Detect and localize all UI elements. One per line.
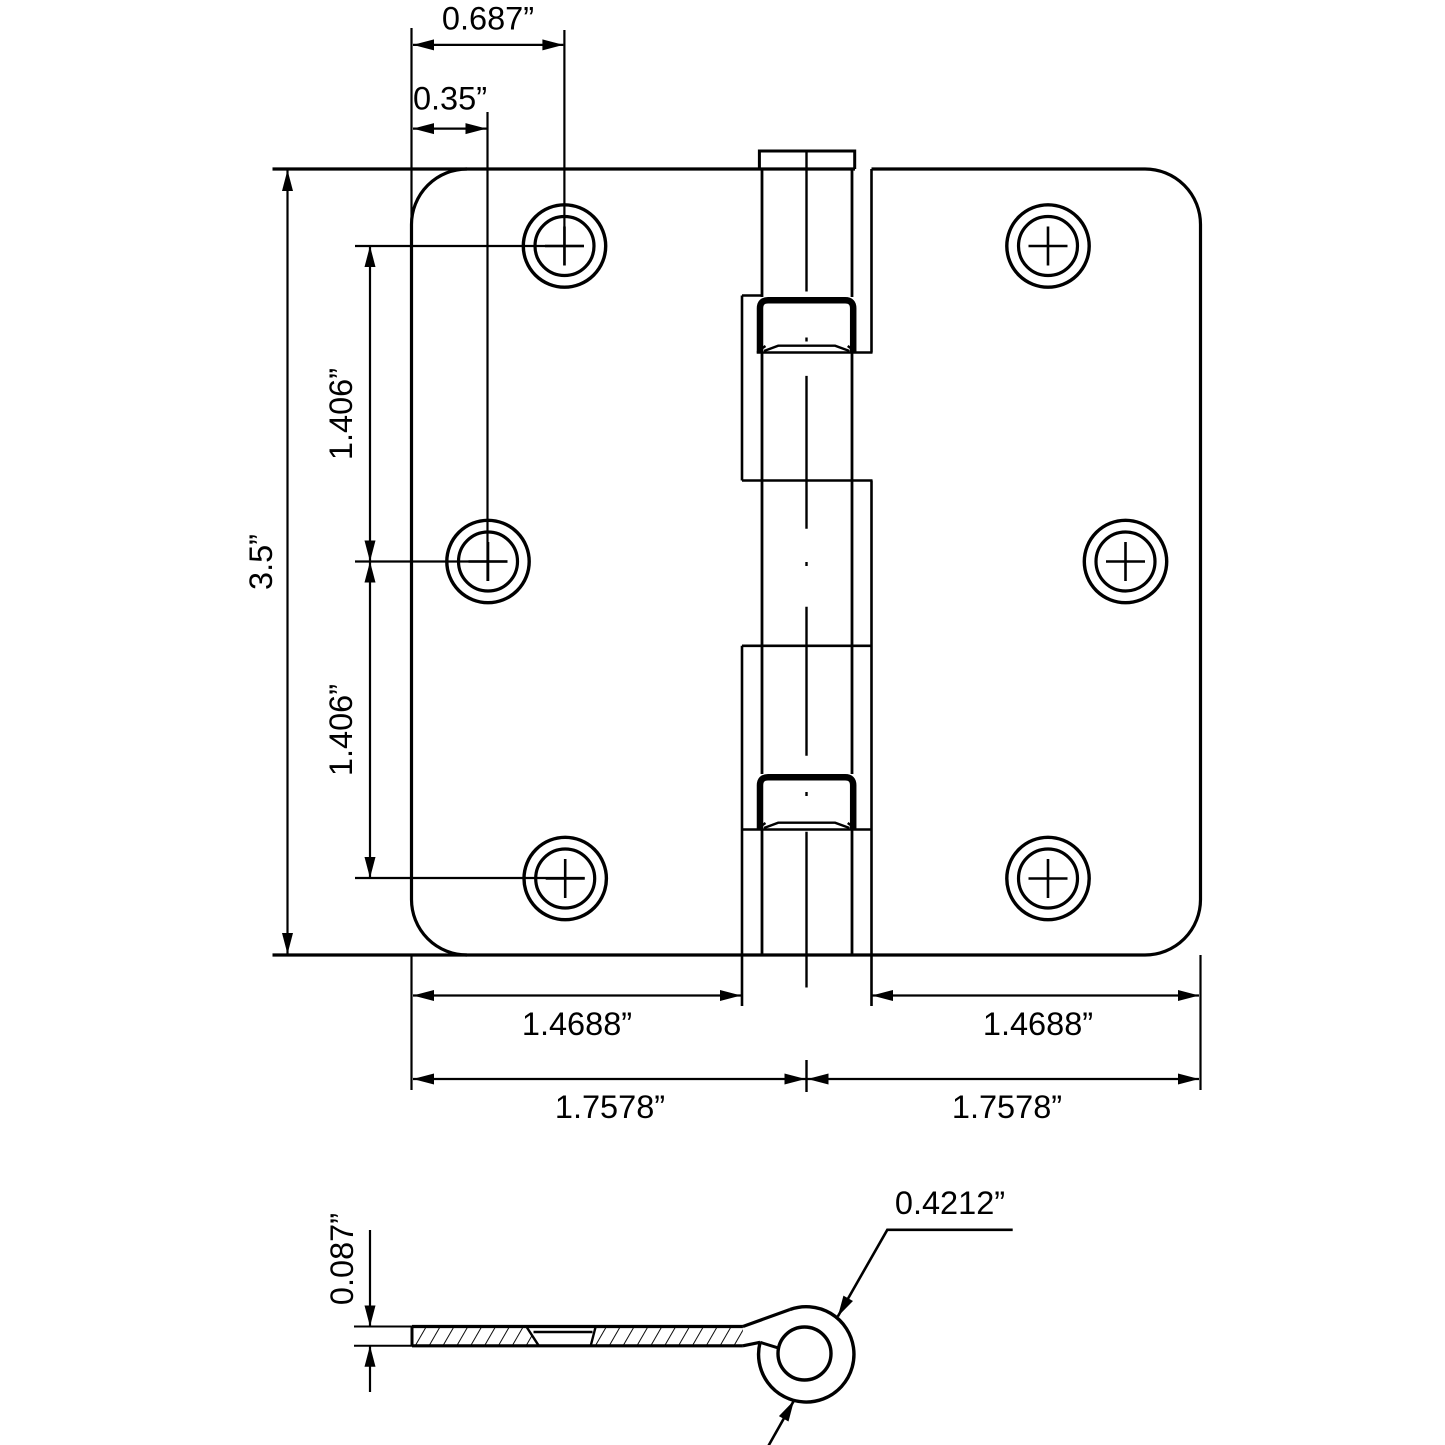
svg-text:1.4688”: 1.4688” xyxy=(983,1006,1093,1042)
svg-text:0.35”: 0.35” xyxy=(413,81,487,117)
svg-text:1.7578”: 1.7578” xyxy=(555,1089,665,1125)
svg-text:0.4212”: 0.4212” xyxy=(895,1185,1005,1221)
svg-text:1.406”: 1.406” xyxy=(323,368,359,460)
svg-text:1.4688”: 1.4688” xyxy=(522,1006,632,1042)
svg-text:0.687”: 0.687” xyxy=(442,1,534,37)
svg-text:0.087”: 0.087” xyxy=(324,1213,360,1305)
svg-text:3.5”: 3.5” xyxy=(243,534,279,590)
svg-text:1.7578”: 1.7578” xyxy=(952,1089,1062,1125)
svg-text:1.406”: 1.406” xyxy=(323,684,359,776)
